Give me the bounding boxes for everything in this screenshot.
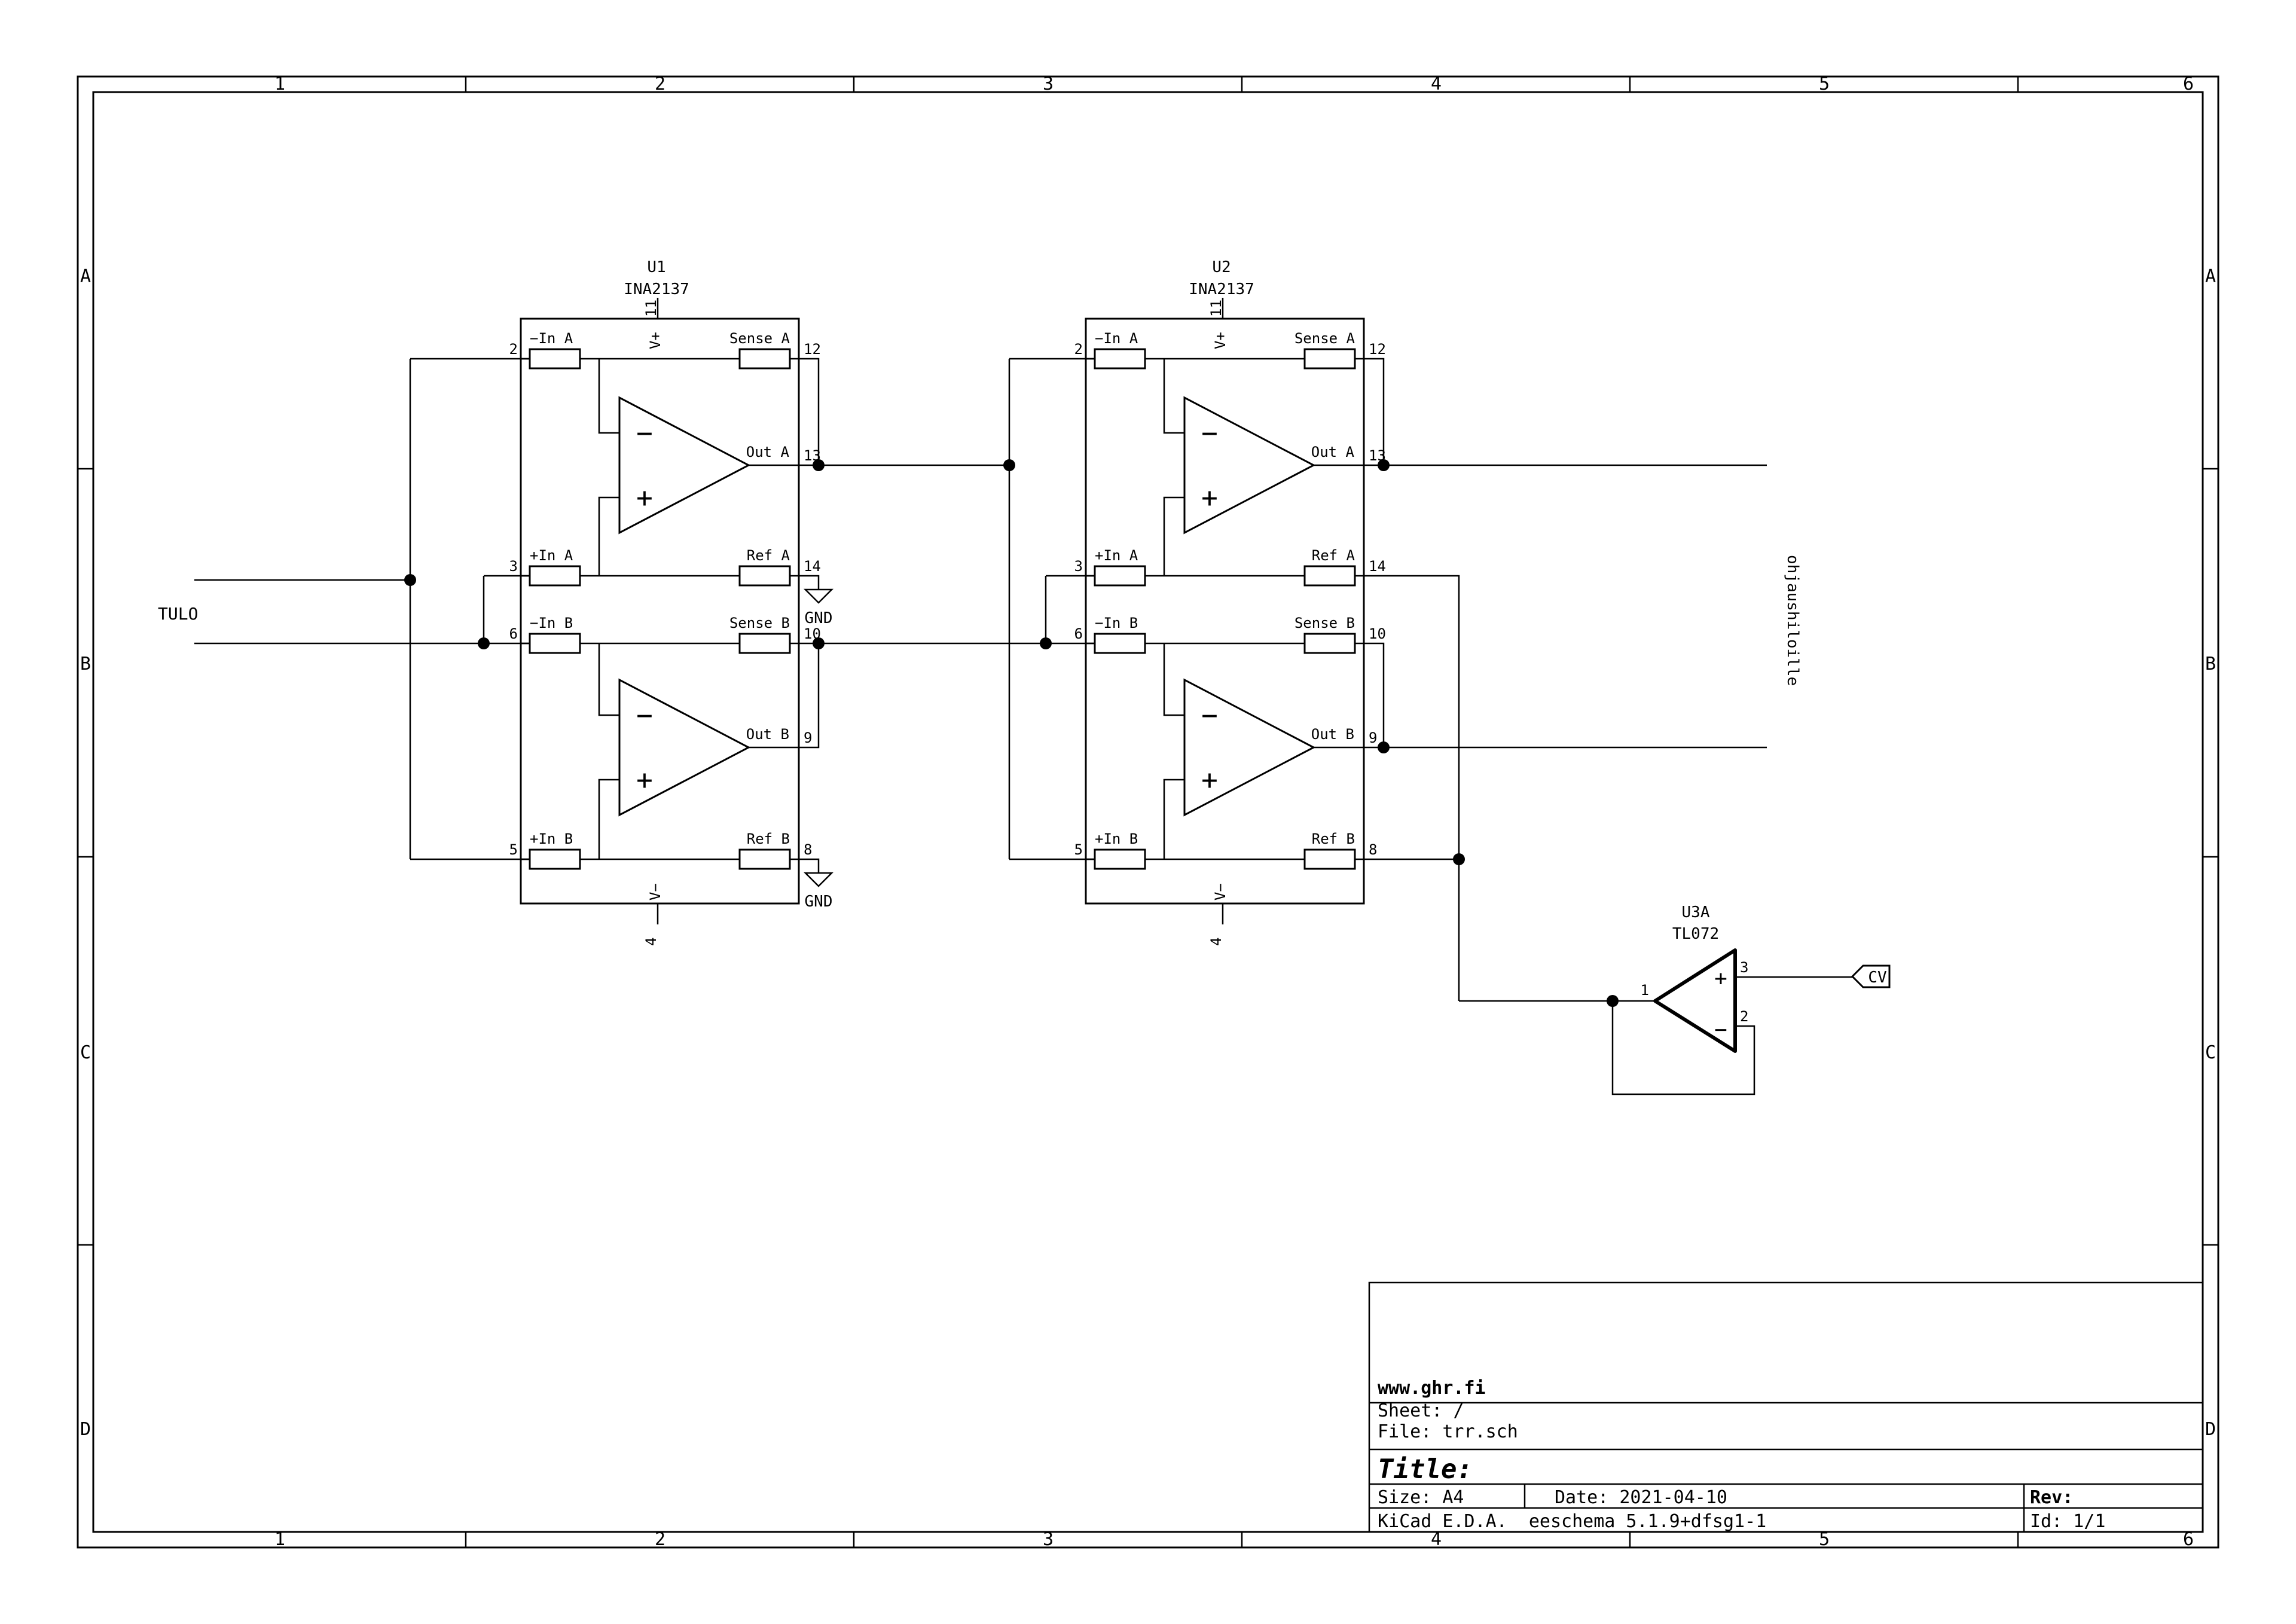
resistor-box — [740, 634, 790, 653]
component-value: TL072 — [1672, 925, 1719, 943]
resistor-box — [1305, 349, 1355, 368]
opamp-minus-sign: − — [636, 417, 653, 449]
tool-version: KiCad E.D.A. eeschema 5.1.9+dfsg1-1 — [1378, 1511, 1766, 1532]
grid-row-label: B — [80, 654, 91, 674]
pin-number: 6 — [509, 625, 518, 642]
pin-number: 2 — [509, 341, 518, 358]
opamp-plus-sign: + — [1201, 481, 1218, 514]
pin-number: 11 — [1208, 300, 1225, 317]
junction-dot — [813, 637, 825, 649]
pin-number: 6 — [1074, 625, 1083, 642]
opamp-plus-sign: + — [636, 764, 653, 796]
pin-number: 8 — [804, 841, 812, 858]
pin-number: 12 — [1369, 341, 1386, 358]
pin-label-ref-b: Ref B — [747, 831, 790, 847]
grid-row-label: D — [2205, 1419, 2216, 1440]
pin-label-out-b: Out B — [1311, 726, 1354, 743]
junction-dot — [404, 574, 416, 586]
pin-label-sense-b: Sense B — [729, 615, 790, 631]
component-ref: U1 — [647, 258, 665, 276]
opamp-plus-sign: + — [1201, 764, 1218, 796]
grid-col-label: 2 — [655, 1529, 665, 1550]
pin-number: 4 — [643, 938, 660, 946]
sheet-border: 1 2 3 4 5 6 1 2 3 4 5 6 A B C D A B C D — [78, 74, 2218, 1550]
junction-dot — [1607, 995, 1619, 1007]
pin-label-in-a-plus: +In A — [530, 547, 573, 564]
pin-number: 2 — [1740, 1008, 1748, 1025]
gnd-label: GND — [805, 893, 833, 911]
component-ref: U3A — [1682, 903, 1710, 921]
pin-number: 4 — [1208, 938, 1225, 946]
rev-field: Rev: — [2030, 1487, 2073, 1508]
junction-dot — [813, 459, 825, 471]
grid-col-label: 6 — [2183, 74, 2194, 94]
pin-number: 10 — [1369, 625, 1386, 642]
component-value: INA2137 — [1189, 280, 1254, 298]
resistor-box — [1305, 566, 1355, 585]
pin-number: 8 — [1369, 841, 1377, 858]
pin-label-in-a-minus: −In A — [530, 330, 573, 347]
pin-label-v-minus: V− — [647, 883, 664, 900]
gnd-symbol-ref-a: GND — [799, 576, 832, 627]
pin-label-sense-a: Sense A — [729, 330, 790, 347]
net-label-ohjaushiloille: ohjaushiloille — [1784, 555, 1802, 686]
gnd-symbol-ref-b: GND — [799, 859, 832, 911]
pin-label-in-b-plus: +In B — [1095, 831, 1138, 847]
grid-row-label: A — [80, 266, 91, 287]
page-id: Id: 1/1 — [2030, 1511, 2105, 1532]
opamp-plus-sign: + — [1714, 966, 1727, 991]
grid-row-label: B — [2205, 654, 2216, 674]
junction-dot — [1003, 459, 1015, 471]
title-block-outline — [1369, 1283, 2203, 1532]
title-field: Title: — [1378, 1454, 1473, 1485]
pin-number: 14 — [1369, 558, 1386, 575]
pin-label-in-a-plus: +In A — [1095, 547, 1138, 564]
junction-dot — [1378, 741, 1390, 753]
pin-number: 1 — [1641, 982, 1649, 999]
pin-label-in-b-minus: −In B — [530, 615, 573, 631]
pin-number: 14 — [804, 558, 821, 575]
junction-dot — [1453, 853, 1465, 865]
pin-number: 3 — [509, 558, 518, 575]
company-url: www.ghr.fi — [1378, 1378, 1486, 1399]
component-u2: U2 INA2137 −In A Sense A +In A Ref A −In… — [1074, 258, 1386, 946]
pin-label-out-a: Out A — [1311, 444, 1355, 460]
global-label-cv: CV — [1852, 966, 1889, 987]
pin-number: 9 — [804, 729, 812, 746]
grid-row-label: C — [80, 1042, 91, 1063]
sheet-field: Sheet: / — [1378, 1400, 1464, 1421]
pin-number: 11 — [643, 300, 660, 317]
resistor-box — [1095, 634, 1145, 653]
grid-col-label: 5 — [1819, 74, 1830, 94]
junction-dot — [1378, 459, 1390, 471]
title-block: www.ghr.fi Sheet: / File: trr.sch Title:… — [1369, 1283, 2203, 1532]
opamp-minus-sign: − — [1714, 1018, 1727, 1042]
resistor-box — [1305, 850, 1355, 869]
resistor-box — [740, 349, 790, 368]
net-label-tulo: TULO — [158, 604, 198, 624]
pin-number: 5 — [1074, 841, 1083, 858]
pin-label-v-plus: V+ — [647, 332, 664, 349]
pin-label-out-a: Out A — [746, 444, 790, 460]
pin-number: 2 — [1074, 341, 1083, 358]
resistor-box — [530, 349, 580, 368]
junction-dot — [478, 637, 490, 649]
schematic-page: 1 2 3 4 5 6 1 2 3 4 5 6 A B C D A B C D … — [0, 0, 2296, 1624]
grid-row-label: D — [80, 1419, 91, 1440]
resistor-box — [1095, 850, 1145, 869]
ina-body — [521, 319, 799, 903]
wire-net — [194, 359, 1852, 1094]
resistor-box — [530, 850, 580, 869]
resistor-box — [530, 566, 580, 585]
grid-col-label: 3 — [1043, 1529, 1054, 1550]
grid-ticks — [78, 77, 2218, 1547]
pin-label-ref-b: Ref B — [1312, 831, 1355, 847]
file-field: File: trr.sch — [1378, 1421, 1518, 1442]
opamp-minus-sign: − — [636, 699, 653, 731]
pin-label-sense-a: Sense A — [1294, 330, 1355, 347]
grid-col-label: 4 — [1431, 74, 1442, 94]
pin-label-in-b-minus: −In B — [1095, 615, 1138, 631]
gnd-label: GND — [805, 609, 833, 627]
size-field: Size: A4 — [1378, 1487, 1464, 1508]
grid-row-label: A — [2205, 266, 2216, 287]
pin-label-ref-a: Ref A — [747, 547, 790, 564]
wire-nets — [194, 359, 1852, 1094]
component-value: INA2137 — [624, 280, 689, 298]
pin-label-in-b-plus: +In B — [530, 831, 573, 847]
resistor-box — [1305, 634, 1355, 653]
component-u1: U1 INA2137 −In A Sense A +In A Ref A −In… — [509, 258, 821, 946]
pin-number: 3 — [1740, 959, 1748, 976]
outer-border — [78, 77, 2218, 1547]
junction-dot — [1040, 637, 1052, 649]
resistor-box — [1095, 566, 1145, 585]
pin-number: 9 — [1369, 729, 1377, 746]
gnd-arrow-icon — [805, 590, 832, 603]
component-ref: U2 — [1212, 258, 1231, 276]
resistor-box — [1095, 349, 1145, 368]
pin-label-in-a-minus: −In A — [1095, 330, 1138, 347]
resistor-box — [740, 850, 790, 869]
junction-dots — [404, 459, 1619, 1007]
grid-col-label: 1 — [274, 74, 285, 94]
opamp-plus-sign: + — [636, 481, 653, 514]
resistor-box — [740, 566, 790, 585]
pin-label-out-b: Out B — [746, 726, 789, 743]
pin-label-ref-a: Ref A — [1312, 547, 1355, 564]
grid-col-label: 1 — [274, 1529, 285, 1550]
pin-label-v-plus: V+ — [1212, 332, 1229, 349]
pin-number: 3 — [1074, 558, 1083, 575]
gnd-arrow-icon — [805, 873, 832, 886]
opamp-minus-sign: − — [1201, 417, 1218, 449]
pin-number: 12 — [804, 341, 821, 358]
global-label-text: CV — [1868, 969, 1886, 987]
gnd-wire — [799, 576, 819, 590]
component-u3a: U3A TL072 + − 3 2 1 — [1641, 903, 1749, 1051]
grid-col-label: 3 — [1043, 74, 1054, 94]
grid-row-label: C — [2205, 1042, 2216, 1063]
opamp-minus-sign: − — [1201, 699, 1218, 731]
resistor-box — [530, 634, 580, 653]
pin-label-sense-b: Sense B — [1294, 615, 1355, 631]
gnd-wire — [799, 859, 819, 873]
schematic-canvas: 1 2 3 4 5 6 1 2 3 4 5 6 A B C D A B C D … — [0, 0, 2296, 1624]
grid-col-label: 2 — [655, 74, 665, 94]
pin-number: 5 — [509, 841, 518, 858]
ina-body — [1086, 319, 1364, 903]
date-field: Date: 2021-04-10 — [1555, 1487, 1727, 1508]
pin-label-v-minus: V− — [1212, 883, 1229, 900]
